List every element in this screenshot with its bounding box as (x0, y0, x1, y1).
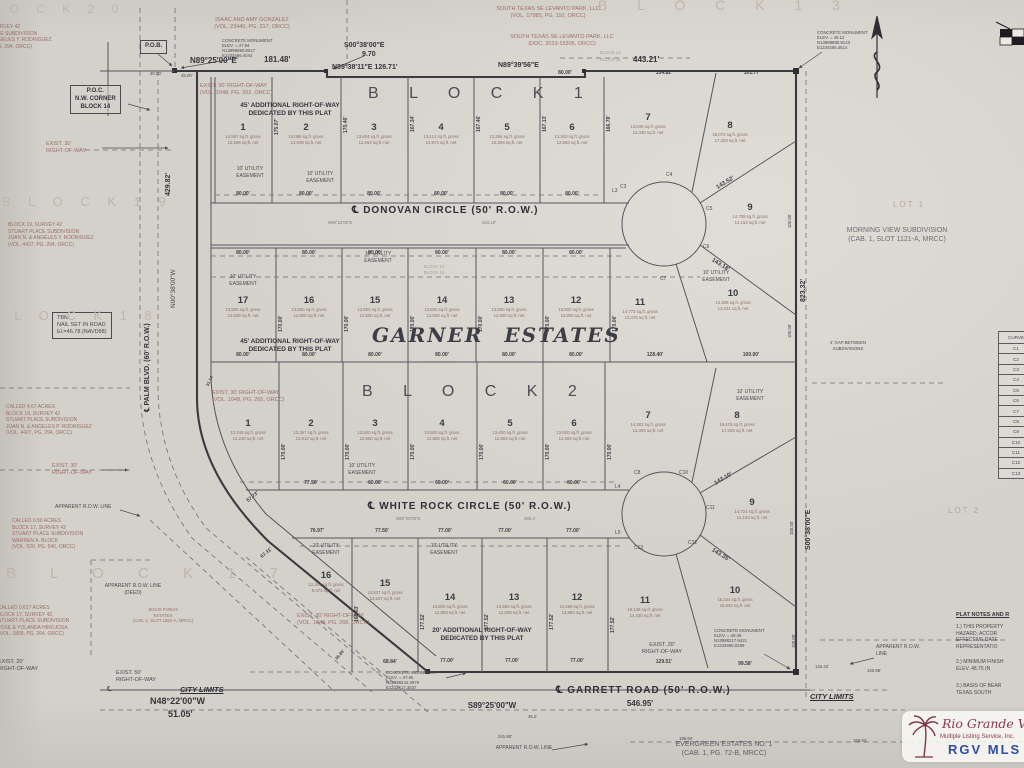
deed-note-block17a: CALLED 0.50 ACRES BLOCK 17, SURVEY 42 ST… (12, 518, 83, 551)
dim-7750: 77.50' (375, 528, 389, 535)
lot2-morning-view-label: LOT 2 (948, 506, 980, 516)
lot-area: 14,772 sq.ft. gross 13,479 sq.ft. net (622, 309, 657, 321)
lot-area: 13,600 sq.ft. gross 12,650 sq.ft. net (491, 307, 526, 319)
dim-100-r1: 100.00' (787, 214, 793, 228)
dim-60: 60.00' (368, 480, 382, 487)
utility-easement-7: 10' UTILITY EASEMENT (736, 389, 764, 402)
exist-30-row-vol202-note: EXIST. 30' RIGHT-OF-WAY (VOL. 1048, PG. … (200, 83, 272, 97)
dim-60: 60.00' (435, 480, 449, 487)
gap-note: 4' GAP BETWEEN SUBDIVISIONS (830, 340, 866, 351)
monument-note-se: CONCRETE MONUMENT ELEV. = 48.46 N1398821… (714, 628, 765, 649)
dim-80: 80.00' (435, 352, 449, 359)
dim-44321: 443.21' (633, 55, 659, 65)
curve-tag: C10 (679, 470, 688, 477)
palm-blvd-label: ℄ PALM BLVD. (60' R.O.W.) (143, 323, 152, 412)
lot-number: 6 (554, 122, 589, 133)
lot-area: 13,349 sq.ft. gross 12,240 sq.ft. net (230, 430, 265, 442)
depth-dim: 177.52' (484, 614, 491, 630)
dim-80: 80.00' (236, 352, 250, 359)
bearing-s8925: S89°25'00"W (468, 701, 516, 711)
dim-80: 80.00' (236, 250, 250, 257)
lot-area: 13,600 sq.ft. gross 12,600 sq.ft. net (291, 307, 326, 319)
donovan-circle-label: ℄ DONOVAN CIRCLE (50' R.O.W.) (352, 204, 539, 217)
lot-number: 4 (423, 122, 458, 133)
depth-dim: 167.34' (410, 116, 417, 132)
apparent-row-deed-label: APPARENT R.O.W. LINE (DEED) (105, 583, 162, 596)
dim-80: 80.00' (500, 191, 514, 198)
lot-b2-7: 714,282 sq.ft. gross 13,394 sq.ft. net (630, 410, 665, 434)
exist-30-row-vol265-note: EXIST. 30' RIGHT-OF-WAY (VOL. 1048, PG. … (212, 390, 284, 404)
dim-80: 80.00' (569, 352, 583, 359)
dim-3000: 30.00' (150, 71, 162, 77)
lot-b2-8: 818,478 sq.ft. gross 17,228 sq.ft. net (719, 410, 754, 434)
exist-50-row-label: EXIST. 50' RIGHT-OF-WAY (116, 670, 156, 684)
curve-row: C6 (999, 395, 1024, 405)
exist-20-row-label-left: EXIST. 20' RIGHT-OF-WAY (0, 659, 38, 673)
garrett-road-label: ℄ GARRETT ROAD (50' R.O.W.) (556, 684, 731, 697)
lot-area: 13,837 sq.ft. gross 12,637 sq.ft. net (367, 590, 402, 602)
depth-dim: 170.00' (478, 316, 485, 332)
curve-row: C1 (999, 343, 1024, 353)
lot-number: 13 (496, 592, 531, 603)
dim-80: 80.00' (434, 191, 448, 198)
city-limits-label-left: CITY LIMITS (180, 685, 224, 695)
lot-b2-9: 914,724 sq.ft. gross 14,153 sq.ft. net (734, 497, 769, 521)
depth-dim: 167.13' (542, 116, 549, 132)
lot-number: 3 (356, 122, 391, 133)
depth-dim: 170.46' (343, 117, 350, 133)
lot-area: 13,805 sq.ft. gross 12,859 sq.ft. net (432, 604, 467, 616)
curve-tag: C12 (688, 540, 697, 547)
depth-dim: 167.46' (476, 116, 483, 132)
lot-area: 18,478 sq.ft. gross 17,228 sq.ft. net (719, 422, 754, 434)
dim-7750: 77.50' (304, 480, 318, 487)
lot-number: 8 (712, 120, 747, 131)
lot-area: 13,500 sq.ft. gross 12,500 sq.ft. net (424, 307, 459, 319)
curve-tag: C4 (666, 172, 672, 179)
dim-15694: 156.94' (853, 738, 867, 744)
curve-row: C12 (999, 457, 1024, 467)
watermark-brand-text: RGV MLS (948, 742, 1021, 757)
lot-number: 12 (559, 592, 594, 603)
depth-dim: 177.52' (610, 617, 617, 633)
depth-dim: 170.00' (344, 316, 351, 332)
lot-number: 16 (308, 570, 343, 581)
lot-number: 11 (627, 595, 662, 606)
depth-dim: 170.00' (281, 444, 288, 460)
dim-12951: 129.51' (656, 659, 672, 666)
dim-77: 77.00' (498, 528, 512, 535)
lot-number: 12 (558, 295, 593, 306)
block14-tag: BLOCK 14 (600, 57, 621, 63)
dim-13098: 130.98' (867, 668, 881, 674)
utility-easement-2: 10' UTILITY EASEMENT (306, 171, 334, 184)
donovan-length: 543.18' (482, 220, 496, 226)
curve-row: C8 (999, 416, 1024, 426)
curve-row: C13 (999, 468, 1024, 478)
depth-dim: 168.63' (354, 606, 361, 622)
deed-note-block18: CALLED 4.67 ACRES BLOCK 18, SURVEY 42 ST… (6, 404, 92, 437)
dim-80: 80.00' (236, 191, 250, 198)
lot-b2-14: 1413,805 sq.ft. gross 12,859 sq.ft. net (432, 592, 467, 616)
depth-dim: 170.00' (607, 444, 614, 460)
curve-row: C2 (999, 353, 1024, 363)
lot-number: 6 (556, 418, 591, 429)
depth-dim: 170.00' (278, 316, 285, 332)
lot-number: 7 (630, 112, 665, 123)
plat-note-2: 2.) MINIMUM FINISH ELEV. 48.75 (N (956, 659, 1024, 672)
lot-b1-3: 313,604 sq.ft. gross 12,664 sq.ft. net (356, 122, 391, 146)
lot-number: 1 (230, 418, 265, 429)
bearing-palm-n0038: N00°38'00"W (170, 269, 178, 308)
whiterock-bearing: N89°22'00"E (396, 516, 420, 522)
utility-easement-6: 10' UTILITY EASEMENT (348, 463, 376, 476)
curve-tag-L3: L3 (612, 188, 618, 195)
lot-number: 1 (225, 122, 260, 133)
lot-b1-15: 1513,500 sq.ft. gross 12,500 sq.ft. net (357, 295, 392, 319)
scale-bar-icon (996, 22, 1024, 45)
lot-area: 13,363 sq.ft. gross 12,593 sq.ft. net (554, 134, 589, 146)
lot-number: 11 (622, 297, 657, 308)
lot-number: 16 (291, 295, 326, 306)
city-limits-label-right: CITY LIMITS (810, 692, 854, 702)
curve-tag: C7 (660, 276, 666, 283)
whiterock-length: 450.4' (524, 516, 536, 522)
lot-b2-12: 1213,468 sq.ft. gross 12,884 sq.ft. net (559, 592, 594, 616)
dim-80: 80.00' (502, 250, 516, 257)
lot-b2-13: 1313,583 sq.ft. gross 12,839 sq.ft. net (496, 592, 531, 616)
curve-row: C10 (999, 437, 1024, 447)
lot-area: 13,500 sq.ft. gross 12,500 sq.ft. net (357, 307, 392, 319)
block1-title: B L O C K 1 (368, 84, 596, 105)
dim-77: 77.00' (570, 658, 584, 665)
curve-tag: C6 (703, 244, 709, 251)
lot-area: 14,282 sq.ft. gross 13,394 sq.ft. net (630, 422, 665, 434)
plat-notes-title: PLAT NOTES AND R (956, 612, 1009, 619)
lot-area: 14,724 sq.ft. gross 14,153 sq.ft. net (734, 509, 769, 521)
utility-easement-4: 10' UTILITY EASEMENT (229, 274, 257, 287)
dim-sub3: 101.77' (744, 70, 760, 77)
lot-number: 13 (491, 295, 526, 306)
lot-b2-4: 413,500 sq.ft. gross 12,806 sq.ft. net (424, 418, 459, 442)
block13-tag: BLOCK 13 (600, 50, 621, 56)
depth-dim: 166.78' (606, 116, 613, 132)
lot-number: 2 (288, 122, 323, 133)
ghost-block14-15-tag: BLOCK 14 BLOCK 15 (424, 264, 445, 275)
utility-easement-8: 10' UTILITY EASEMENT (312, 543, 340, 556)
plat-map-scan: L O C K 2 0 B L O C K 1 3 ISAAC AND AMY … (0, 0, 1024, 768)
curve-row: C5 (999, 385, 1024, 395)
lot-number: 14 (424, 295, 459, 306)
lot-number: 5 (489, 122, 524, 133)
additional-20-row-note: 20' ADDITIONAL RIGHT-OF-WAY DEDICATED BY… (432, 627, 532, 644)
plat-note-1: 1.) THIS PROPERTY HAZARD, ACCOR EFFECTIV… (956, 624, 1024, 650)
curve-row: C11 (999, 447, 1024, 457)
lot-b1-9: 914,708 sq.ft. gross 14,154 sq.ft. net (732, 202, 767, 226)
utility-easement-9: 10' UTILITY EASEMENT (430, 543, 458, 556)
owner-note-levanto-2: SOUTH TEXAS SE LEVANTO PARK, LLC (DOC. 2… (510, 34, 614, 48)
lot-area: 14,597 sq.ft. gross 13,586 sq.ft. net (225, 134, 260, 146)
block2-title: B L O C K 2 (362, 382, 590, 403)
lot-b1-13: 1313,600 sq.ft. gross 12,650 sq.ft. net (491, 295, 526, 319)
depth-dim: 177.52' (549, 614, 556, 630)
dim-6884: 68.84' (383, 659, 397, 666)
lot-area: 13,485 sq.ft. gross 13,031 sq.ft. net (715, 300, 750, 312)
lot-number: 7 (630, 410, 665, 421)
lot-area: 13,384 sq.ft. gross 12,594 sq.ft. net (489, 134, 524, 146)
dim-24190: 241.90' (498, 734, 512, 740)
lot-area: 13,400 sq.ft. gross 12,506 sq.ft. net (492, 430, 527, 442)
curve-tag-L5: L5 (615, 530, 621, 537)
dim-80: 80.00' (435, 250, 449, 257)
lot-b1-4: 413,414 sq.ft. gross 12,874 sq.ft. net (423, 122, 458, 146)
dim-sub2: 134.82' (656, 70, 672, 77)
dim-42982: 429.82' (164, 173, 173, 196)
bearing-s0038: S00°38'00"E (344, 41, 384, 50)
deed-note-block20: BLOCK 20, SURVEY 42 STUART PLACE SUBDIVI… (0, 24, 52, 50)
dim-13242: 132.42' (815, 664, 829, 670)
lot-b2-15: 1513,837 sq.ft. gross 12,637 sq.ft. net (367, 578, 402, 602)
monument-note-sw: CONCRETE MONUMENT ELEV. = 47.96 N1398824… (386, 670, 437, 691)
dim-970: 9.70 (362, 50, 376, 59)
dim-4500: 45.00' (181, 73, 193, 79)
lot-number: 10 (715, 288, 750, 299)
curve-tag-L4: L4 (615, 484, 621, 491)
bearing-n8925: N89°25'00"E (190, 56, 237, 66)
dim-12840: 128.40' (647, 352, 663, 359)
dim-7697: 76.97' (310, 528, 324, 535)
dim-80: 80.00' (565, 191, 579, 198)
lot-b2-6: 613,600 sq.ft. gross 12,606 sq.ft. net (556, 418, 591, 442)
dim-80: 80.00' (302, 250, 316, 257)
lot-b1-8: 818,072 sq.ft. gross 17,320 sq.ft. net (712, 120, 747, 144)
lot-number: 9 (734, 497, 769, 508)
poc-box: P.O.C. N.W. CORNER BLOCK 14 (70, 85, 121, 114)
lot-b2-16: 1612,361 sq.ft. gross 9,373 sq.ft. net (308, 570, 343, 594)
lot-number: 8 (719, 410, 754, 421)
lot-number: 4 (424, 418, 459, 429)
lot-b2-2: 213,367 sq.ft. gross 12,812 sq.ft. net (293, 418, 328, 442)
lot-area: 13,583 sq.ft. gross 12,839 sq.ft. net (496, 604, 531, 616)
lot1-morning-view-label: LOT 1 (893, 200, 925, 210)
curve-tag: C5 (706, 206, 712, 213)
lot-area: 13,604 sq.ft. gross 12,664 sq.ft. net (356, 134, 391, 146)
lot-number: 3 (357, 418, 392, 429)
lot-number: 10 (717, 585, 752, 596)
lot-area: 13,367 sq.ft. gross 12,812 sq.ft. net (293, 430, 328, 442)
depth-dim: 170.00' (410, 316, 417, 332)
ghost-block13-label: B L O C K 1 3 (598, 0, 853, 14)
depth-dim: 170.00' (612, 316, 619, 332)
dim-452: 45.2' (528, 714, 537, 720)
lot-number: 9 (732, 202, 767, 213)
lot-b1-2: 214,086 sq.ft. gross 13,048 sq.ft. net (288, 122, 323, 146)
lot-b1-1: 114,597 sq.ft. gross 13,586 sq.ft. net (225, 122, 260, 146)
palm-tree-icon (905, 713, 941, 759)
deed-note-block17b: CALLED 0.617 ACRES BLOCK 17, SURVEY 42, … (0, 605, 69, 638)
lot-area: 13,414 sq.ft. gross 12,874 sq.ft. net (423, 134, 458, 146)
lot-b1-11: 1114,772 sq.ft. gross 13,479 sq.ft. net (622, 297, 657, 321)
lot-number: 15 (367, 578, 402, 589)
lot-b1-16: 1613,600 sq.ft. gross 12,600 sq.ft. net (291, 295, 326, 319)
depth-dim: 170.00' (545, 316, 552, 332)
bearing-n8938: N89°38'11"E 126.71' (332, 63, 398, 72)
exist-20-row-label-right: EXIST. 20' RIGHT-OF-WAY (642, 642, 682, 656)
dim-80: 80.00' (302, 352, 316, 359)
ghost-block17-label: B L O C K 1 7 (6, 564, 293, 584)
curve-table-header: CURVE (999, 332, 1024, 343)
dim-54695: 546.95' (627, 699, 653, 709)
lot-area: 12,361 sq.ft. gross 9,373 sq.ft. net (308, 582, 343, 594)
exist-30-row-label-2: EXIST. 30' RIGHT-OF-WAY (52, 463, 92, 477)
dim-100-r3: 100.00' (789, 521, 795, 535)
lot-area: 13,500 sq.ft. gross 12,550 sq.ft. net (357, 430, 392, 442)
lot-b1-6: 613,363 sq.ft. gross 12,593 sq.ft. net (554, 122, 589, 146)
lot-b2-3: 313,500 sq.ft. gross 12,550 sq.ft. net (357, 418, 392, 442)
depth-dim: 170.00' (410, 444, 417, 460)
lot-b2-5: 513,400 sq.ft. gross 12,506 sq.ft. net (492, 418, 527, 442)
evergreen-estates-note: EVERGREEN ESTATES NO. 1 (CAB. 1, PG. 72-… (676, 740, 773, 758)
ghost-block18-label: B L O C K 1 8 (0, 308, 159, 325)
dim-77: 77.00' (566, 528, 580, 535)
curve-tag: C8 (634, 470, 640, 477)
lot-number: 14 (432, 592, 467, 603)
dim-77: 77.00' (440, 658, 454, 665)
curve-row: C7 (999, 405, 1024, 415)
rgv-mls-watermark: Rio Grande Valley Multiple Listing Servi… (902, 711, 1024, 762)
lot-number: 17 (225, 295, 260, 306)
curve-tag: C3 (620, 184, 626, 191)
lot-b1-7: 713,848 sq.ft. gross 13,330 sq.ft. net (630, 112, 665, 136)
dim-5105: 51.05' (168, 709, 193, 721)
lot-b2-10: 1016,224 sq.ft. gross 15,634 sq.ft. net (717, 585, 752, 609)
curve-tag: C11 (706, 505, 715, 512)
lot-area: 18,135 sq.ft. gross 14,430 sq.ft. net (627, 607, 662, 619)
ghost-block20-label: L O C K 2 0 (0, 2, 125, 18)
corner-monument-marks (172, 68, 799, 675)
lot-number: 2 (293, 418, 328, 429)
lot-area: 13,848 sq.ft. gross 13,330 sq.ft. net (630, 124, 665, 136)
dim-80: 80.00' (502, 352, 516, 359)
owner-note-levanto-1: SOUTH TEXAS SE LEVANTO PARK, LLC (VOL. 1… (496, 6, 600, 20)
lot-b1-10: 1013,485 sq.ft. gross 13,031 sq.ft. net (715, 288, 750, 312)
dim-80: 80.00' (368, 250, 382, 257)
lot-area: 18,072 sq.ft. gross 17,320 sq.ft. net (712, 132, 747, 144)
utility-easement-1: 10' UTILITY EASEMENT (236, 166, 264, 179)
donovan-bearing: N89°22'00"E (328, 220, 352, 226)
pob-box: P.O.B. (140, 40, 167, 54)
lot-number: 15 (357, 295, 392, 306)
lot-b2-1: 113,349 sq.ft. gross 12,240 sq.ft. net (230, 418, 265, 442)
depth-dim: 175.07' (274, 119, 281, 135)
watermark-sub-text: Multiple Listing Service, Inc. (940, 734, 1014, 740)
dim-80: 80.00' (569, 250, 583, 257)
morning-view-note: MORNING VIEW SUBDIVISION (CAB. 1, SLOT 1… (847, 226, 948, 244)
depth-dim: 170.00' (345, 444, 352, 460)
dim-100-r2: 100.00' (787, 324, 793, 338)
lot-b2-11: 1118,135 sq.ft. gross 14,430 sq.ft. net (627, 595, 662, 619)
north-arrow-icon (872, 16, 882, 98)
lot-area: 13,600 sq.ft. gross 12,536 sq.ft. net (225, 307, 260, 319)
monument-note-ne: CONCRETE MONUMENT ELEV. = 48.12 N1398988… (817, 30, 868, 51)
lot-area: 13,500 sq.ft. gross 12,806 sq.ft. net (424, 430, 459, 442)
plat-note-3: 3.) BASIS OF BEAR TEXAS SOUTH (956, 683, 1024, 696)
dim-80: 80.00' (299, 191, 313, 198)
lot-area: 13,600 sq.ft. gross 12,800 sq.ft. net (558, 307, 593, 319)
dim-80: 80.00' (567, 480, 581, 487)
lot-b1-5: 513,384 sq.ft. gross 12,594 sq.ft. net (489, 122, 524, 146)
centerline-symbol: ℄ (107, 685, 112, 694)
dim-9958: 99.58' (738, 661, 752, 668)
depth-dim: 170.00' (479, 444, 486, 460)
bearing-s0038-right: S00°38'00"E (804, 510, 813, 550)
apparent-row-label-bottom: APPARENT R.O.W. LINE (496, 745, 553, 752)
additional-45-row-note-1: 45' ADDITIONAL RIGHT-OF-WAY DEDICATED BY… (240, 102, 340, 119)
additional-45-row-note-2: 45' ADDITIONAL RIGHT-OF-WAY DEDICATED BY… (240, 338, 340, 355)
dim-80: 80.00' (367, 191, 381, 198)
dim-77: 77.00' (438, 528, 452, 535)
dim-60: 60.00' (503, 480, 517, 487)
farias-estates-note: JESUS FARIAS ESTATES (CAB. 1, SLOT 1684-… (133, 607, 193, 624)
dim-100-r4: 100.00' (791, 634, 797, 648)
white-rock-circle-label: ℄ WHITE ROCK CIRCLE (50' R.O.W.) (368, 500, 572, 513)
dim-100: 100.00' (743, 352, 759, 359)
lot-area: 14,086 sq.ft. gross 13,048 sq.ft. net (288, 134, 323, 146)
lot-b1-12: 1213,600 sq.ft. gross 12,800 sq.ft. net (558, 295, 593, 319)
lot-number: 5 (492, 418, 527, 429)
bearing-n4822: N48°22'00"W (150, 696, 205, 708)
curve-table: CURVE C1 C2 C3 C4 C5 C6 C7 C8 C9 C10 C11… (998, 331, 1024, 479)
bearing-n8939: N89°39'56"E (498, 61, 539, 70)
apparent-row-label-left: APPARENT R.O.W. LINE (55, 504, 112, 511)
lot-b1-17: 1713,600 sq.ft. gross 12,536 sq.ft. net (225, 295, 260, 319)
dim-sub1: 80.00' (558, 70, 572, 77)
curve-tag: C13 (634, 545, 643, 552)
dim-80: 80.00' (368, 352, 382, 359)
lot-area: 13,600 sq.ft. gross 12,606 sq.ft. net (556, 430, 591, 442)
lot-b1-14: 1413,500 sq.ft. gross 12,500 sq.ft. net (424, 295, 459, 319)
curve-row: C9 (999, 426, 1024, 436)
depth-dim: 170.00' (545, 444, 552, 460)
owner-note-gonzalez: ISAAC AND AMY GONZALEZ (VOL. 23440, PG. … (214, 17, 290, 31)
curve-row: C3 (999, 364, 1024, 374)
deed-note-block19: BLOCK 19, SURVEY 42 STUART PLACE SUBDIVI… (8, 222, 94, 248)
ghost-block19-label: B L O C K 1 9 (2, 194, 173, 211)
depth-dim: 177.52' (420, 614, 427, 630)
exist-30-row-label-1: EXIST. 30' RIGHT-OF-WAY (46, 141, 86, 155)
dim-82332: 823.32' (799, 279, 808, 302)
watermark-script-text: Rio Grande Valley (942, 716, 1024, 731)
apparent-row-label-right: APPARENT R.O.W. LINE (876, 644, 920, 657)
curve-row: C4 (999, 374, 1024, 384)
lot-area: 14,708 sq.ft. gross 14,154 sq.ft. net (732, 214, 767, 226)
dim-18148: 181.48' (264, 55, 290, 65)
lot-area: 16,224 sq.ft. gross 15,634 sq.ft. net (717, 597, 752, 609)
lot-area: 13,468 sq.ft. gross 12,884 sq.ft. net (559, 604, 594, 616)
dim-77: 77.00' (505, 658, 519, 665)
